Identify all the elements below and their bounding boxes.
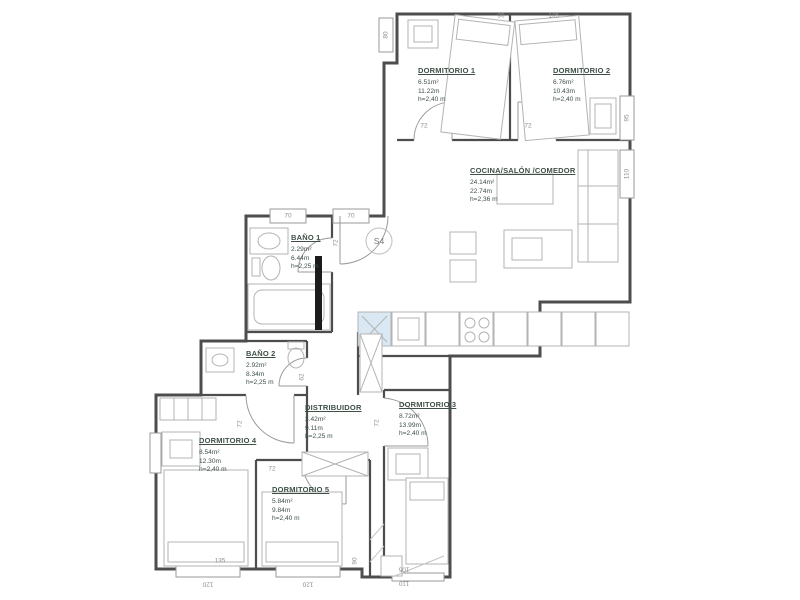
floorplan-drawing xyxy=(0,0,800,600)
floorplan-page: S4 DORMITORIO 16.51m²11.22mh=2,40 mDORMI… xyxy=(0,0,800,600)
chair xyxy=(450,260,476,282)
closet xyxy=(360,334,382,392)
bed-dormitorio-2 xyxy=(515,15,589,140)
radiator xyxy=(315,256,322,330)
kitchen-counter xyxy=(358,312,629,346)
sofa xyxy=(578,150,618,262)
chair xyxy=(450,232,476,254)
dining-table xyxy=(497,174,553,204)
